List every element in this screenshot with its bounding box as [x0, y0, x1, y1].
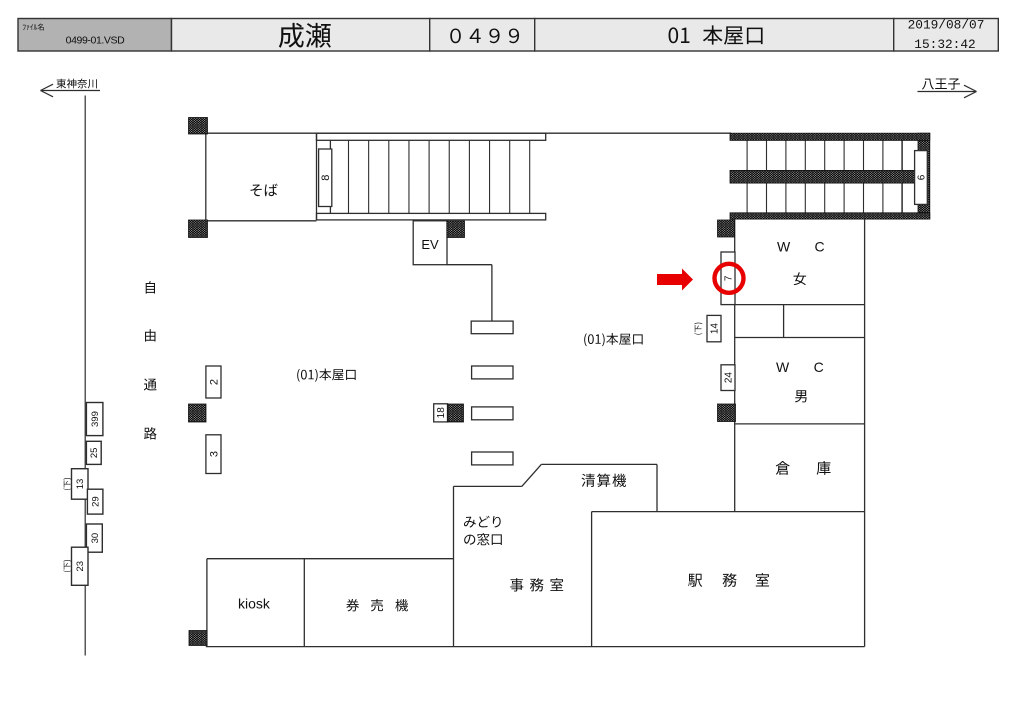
svg-text:W: W	[777, 239, 791, 255]
svg-text:13: 13	[75, 479, 86, 490]
svg-text:14: 14	[710, 323, 721, 335]
svg-text:25: 25	[89, 448, 100, 459]
svg-text:3: 3	[208, 451, 220, 457]
svg-text:399: 399	[90, 411, 101, 427]
svg-text:C: C	[815, 239, 825, 255]
svg-text:2: 2	[208, 379, 220, 385]
svg-text:2019/08/07: 2019/08/07	[908, 18, 985, 33]
svg-text:kiosk: kiosk	[238, 596, 271, 612]
svg-text:EV: EV	[421, 237, 439, 252]
svg-text:6: 6	[917, 174, 928, 180]
svg-text:0499-01.VSD: 0499-01.VSD	[66, 35, 125, 47]
svg-text:23: 23	[75, 561, 86, 572]
svg-text:29: 29	[91, 496, 102, 507]
svg-text:30: 30	[90, 533, 101, 544]
svg-text:15:32:42: 15:32:42	[914, 37, 975, 52]
svg-text:8: 8	[320, 175, 332, 181]
svg-text:W: W	[776, 359, 790, 375]
svg-text:7: 7	[724, 275, 735, 281]
svg-text:24: 24	[724, 372, 735, 384]
svg-text:18: 18	[436, 407, 447, 419]
svg-text:C: C	[814, 359, 824, 375]
